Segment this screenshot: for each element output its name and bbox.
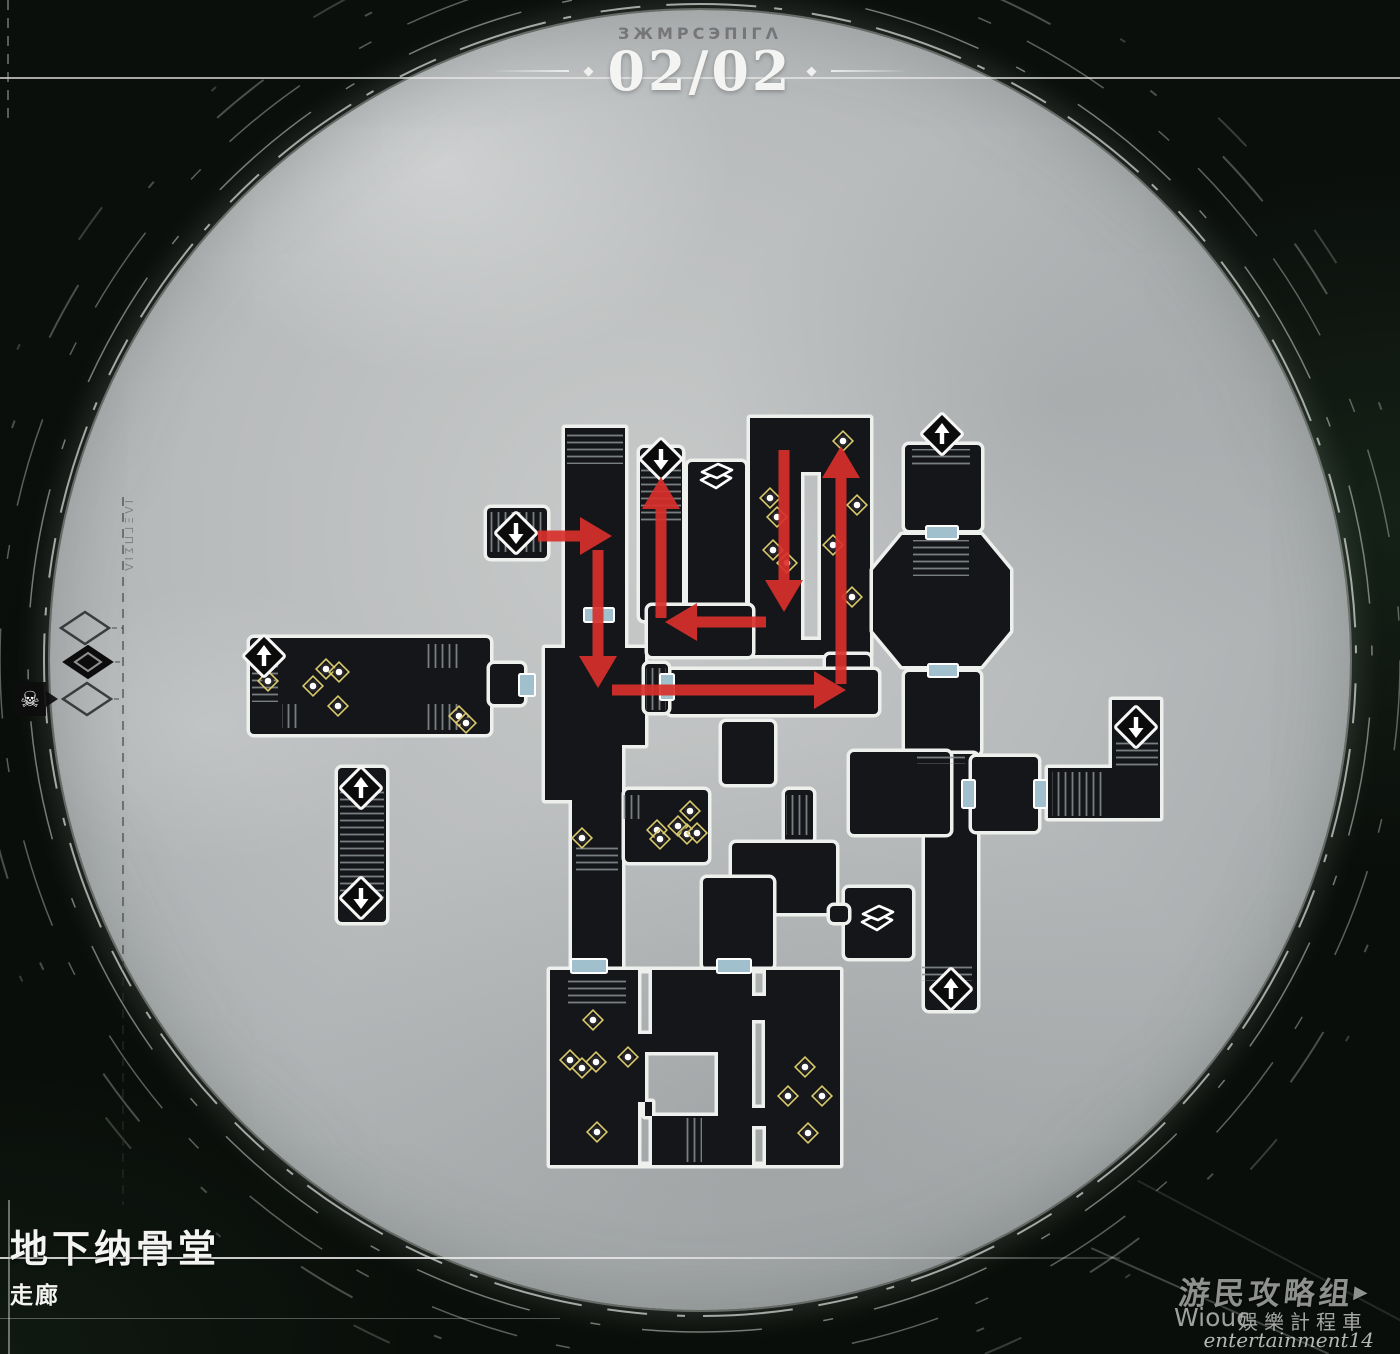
title-left-line bbox=[495, 70, 569, 72]
stairs-texture bbox=[568, 980, 626, 1006]
stairs-texture bbox=[620, 795, 642, 819]
stairs-texture bbox=[567, 432, 623, 464]
door-marker bbox=[717, 959, 751, 973]
stairs-texture bbox=[282, 704, 300, 728]
map-room bbox=[750, 418, 870, 655]
floor-diamond[interactable] bbox=[61, 612, 123, 644]
page-indicator-row: ◆ 02/02 ◆ bbox=[0, 44, 1400, 98]
floor-diamond-current[interactable] bbox=[64, 646, 123, 678]
map-room bbox=[703, 878, 773, 968]
stairs-texture bbox=[576, 845, 618, 873]
location-title: 地下纳骨堂 bbox=[10, 1218, 220, 1273]
footer-divider-line-2 bbox=[0, 1318, 560, 1319]
floor-diamond[interactable] bbox=[63, 683, 123, 715]
stairs-texture bbox=[917, 752, 965, 764]
map-room bbox=[830, 906, 848, 922]
map-room bbox=[905, 672, 980, 754]
stairs-texture bbox=[913, 540, 969, 576]
watermark-line3: entertainment14 bbox=[1203, 1328, 1374, 1352]
title-left-diamond-icon: ◆ bbox=[583, 65, 593, 78]
stairs-texture bbox=[424, 644, 458, 668]
watermark-arrow-icon: ▶ bbox=[1353, 1282, 1373, 1303]
door-marker bbox=[926, 526, 958, 539]
skull-icon: ☠ bbox=[20, 688, 40, 713]
page-indicator: 02/02 bbox=[607, 44, 792, 98]
door-marker bbox=[571, 959, 607, 973]
map-room bbox=[722, 722, 774, 784]
map-svg[interactable]: ☠ bbox=[0, 0, 1400, 1354]
door-marker bbox=[1034, 780, 1047, 808]
stairs-texture bbox=[1052, 772, 1102, 816]
player-marker: ☠ bbox=[14, 682, 58, 716]
stairs-texture bbox=[424, 704, 458, 730]
map-room bbox=[545, 428, 645, 970]
door-marker bbox=[928, 664, 958, 677]
door-marker bbox=[519, 674, 535, 696]
left-ruler-glyphs: ΙΛΞΓΠΣΙΛ bbox=[122, 500, 135, 640]
door-marker bbox=[962, 780, 975, 808]
location-subtitle: 走廊 bbox=[10, 1276, 60, 1310]
stairs-texture bbox=[682, 1118, 702, 1162]
map-room bbox=[972, 757, 1038, 831]
title-right-line bbox=[831, 70, 905, 72]
title-right-diamond-icon: ◆ bbox=[807, 65, 817, 78]
map-screen: ☠ ЗЖMPCЭΠIΓΛ ◆ 02/02 ◆ ΙΛΞΓΠΣΙΛ 地下纳骨堂 走廊… bbox=[0, 0, 1400, 1354]
stairs-texture bbox=[786, 795, 812, 835]
map-room bbox=[850, 752, 950, 834]
